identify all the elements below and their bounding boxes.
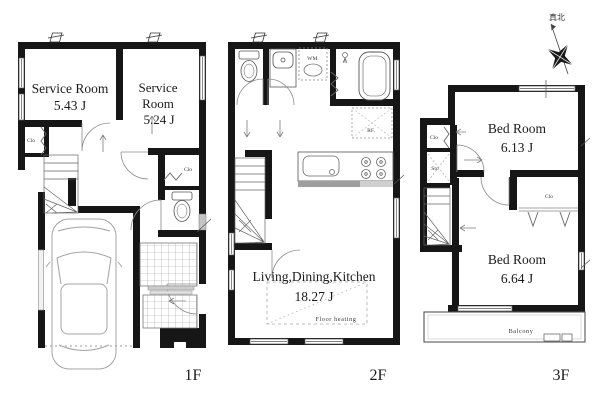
floor-plan-canvas: Service Room 5.43 J Service Room 5.24 J …: [0, 0, 600, 402]
washbasin-icon: [270, 49, 296, 87]
room-name: Service Room: [32, 81, 109, 96]
floor-plan-2f: WM. RF.: [228, 33, 404, 384]
door-swing-arrow: [244, 120, 283, 137]
entry-step-notch: [174, 342, 186, 348]
floor-heating-label: Floor heating: [316, 316, 357, 323]
floor-plan-page: Service Room 5.43 J Service Room 5.24 J …: [0, 0, 600, 402]
room-name: Bed Room: [488, 252, 547, 267]
floor-label: 3F: [553, 367, 570, 384]
compass-icon: 真北: [539, 12, 580, 78]
closet-label: Clo: [27, 138, 35, 144]
balcony-label: Balcony: [509, 328, 534, 335]
closet-hangers: Clo: [519, 194, 578, 226]
hanger-icon: [560, 212, 570, 226]
garage-door: [39, 250, 44, 310]
washing-machine-icon: WM.: [299, 48, 327, 80]
folding-door-icon: [444, 127, 449, 148]
balcony: Balcony: [424, 312, 585, 342]
refrigerator-label: RF.: [367, 128, 375, 134]
kitchen-sink-icon: [303, 156, 339, 176]
bathtub-icon: [359, 52, 390, 100]
hanger-icon: [528, 212, 538, 226]
room-size: 6.13 J: [501, 140, 533, 155]
floor-plan-1f: Service Room 5.43 J Service Room 5.24 J …: [18, 33, 211, 384]
room-size: 18.27 J: [294, 289, 333, 304]
entrance-tiles: [140, 243, 197, 328]
washing-machine-label: WM.: [307, 56, 319, 62]
compass-star-highlight: [539, 36, 580, 77]
room-name: Room: [142, 96, 174, 111]
car-icon: [46, 219, 122, 369]
vent-icon: [48, 33, 162, 42]
refrigerator-icon: RF.: [352, 108, 392, 138]
exterior-door-mark: [199, 214, 206, 230]
vent-icon: [251, 33, 329, 42]
toilet-icon: [172, 192, 192, 222]
floor-plan-3f: Clo Sto Clo: [420, 80, 590, 384]
compass-arrowhead: [551, 24, 556, 31]
floor-label: 2F: [370, 367, 387, 384]
floor-label: 1F: [185, 367, 202, 384]
room-name: Service: [139, 80, 178, 95]
folding-door-icon: [164, 173, 182, 180]
toilet-icon: [239, 51, 259, 82]
room-size: 6.64 J: [501, 271, 533, 286]
room-name: Bed Room: [488, 121, 547, 136]
true-north-label: 真北: [549, 12, 565, 22]
room-size: 5.24 J: [143, 112, 174, 127]
closet-label: Clo: [430, 135, 438, 141]
stairs: [235, 158, 265, 243]
stairs: [424, 188, 450, 245]
kitchen-counter: [298, 152, 393, 187]
room-name: Living,Dining,Kitchen: [253, 269, 376, 284]
closet-label: Clo: [184, 167, 192, 173]
room-size: 5.43 J: [54, 98, 86, 113]
door-swing-arrow: [456, 129, 482, 231]
closet-label: Clo: [545, 194, 553, 200]
shower-icon: [343, 53, 348, 64]
